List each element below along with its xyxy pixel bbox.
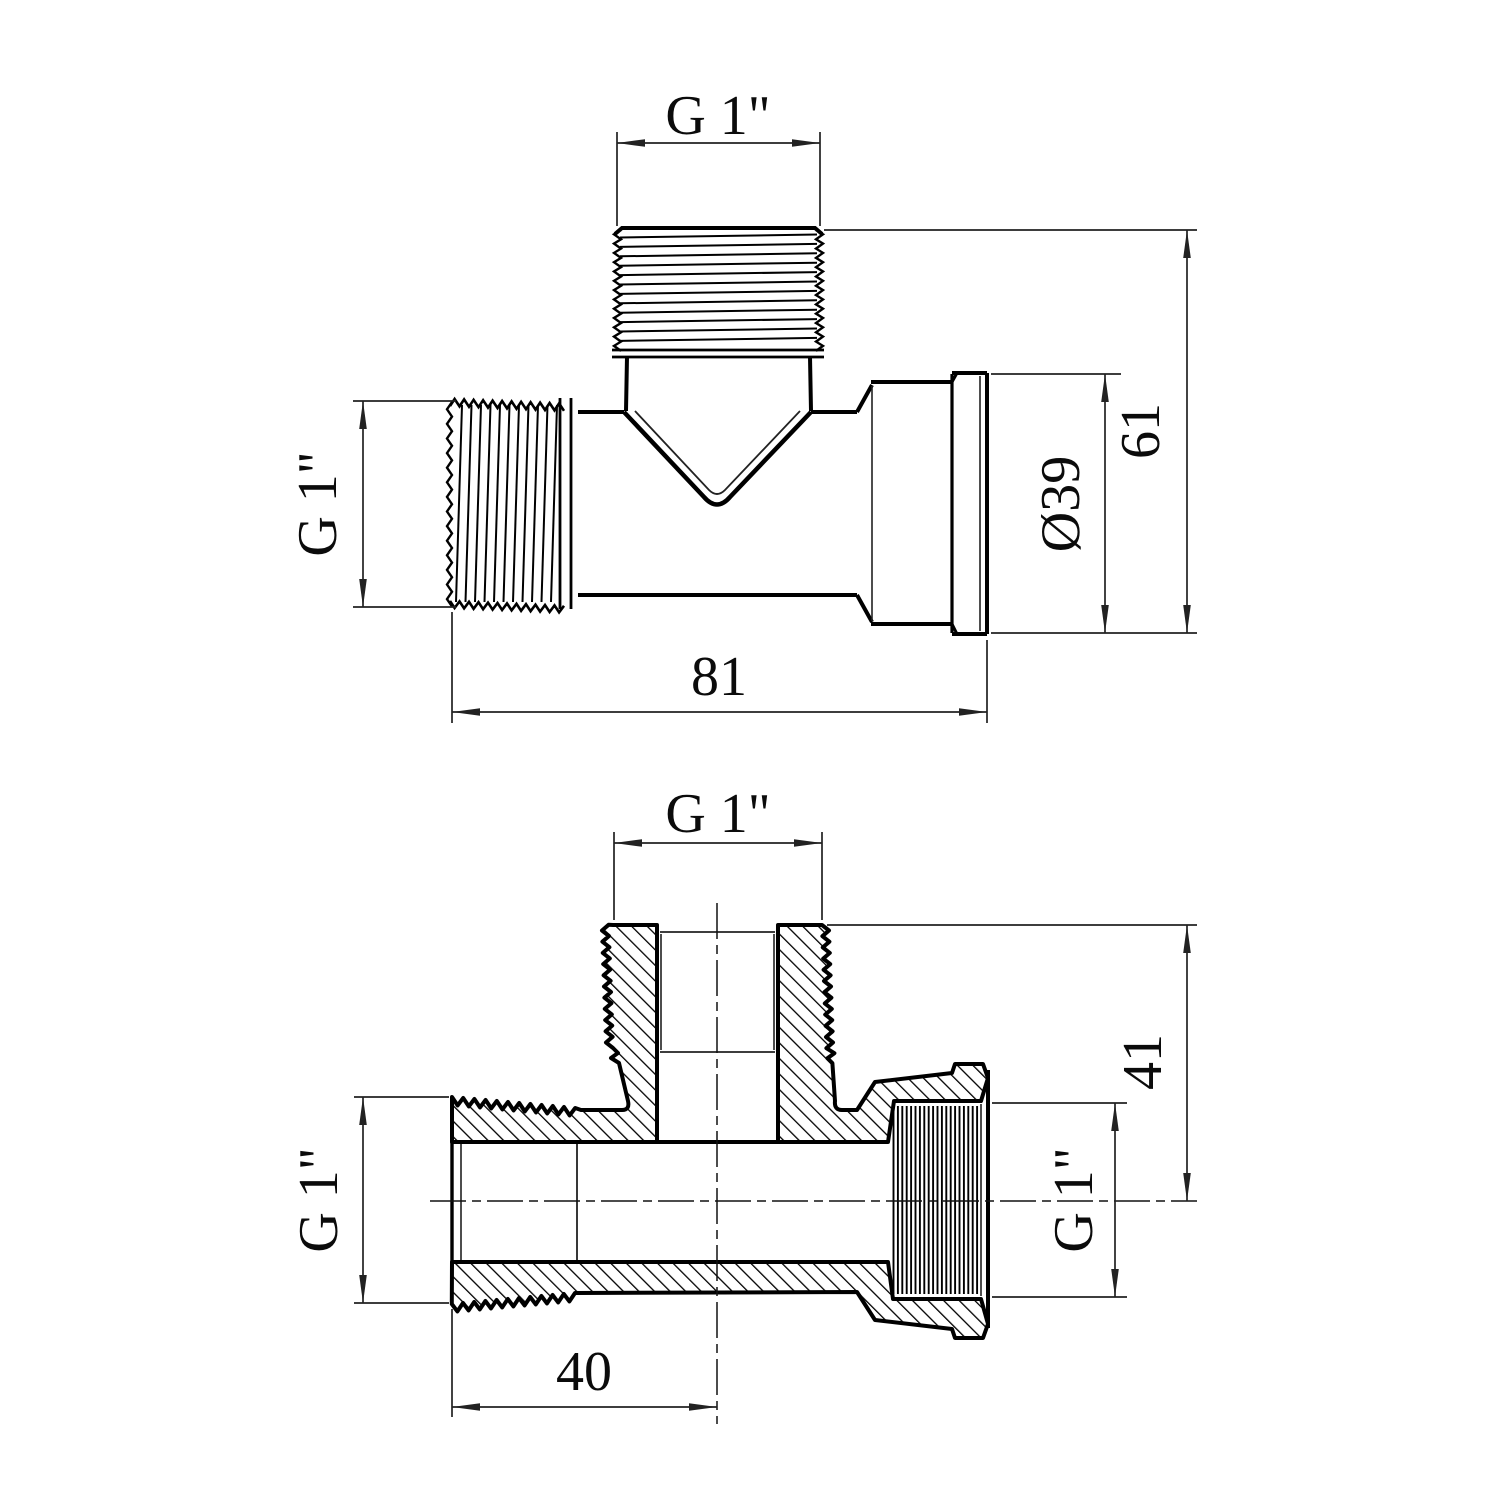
dim-branch-thread-section: G 1" bbox=[614, 783, 822, 920]
dim-label-left-port-length: 40 bbox=[556, 1341, 612, 1403]
top-view-body bbox=[578, 357, 857, 595]
dim-socket-diameter: Ø39 bbox=[991, 374, 1121, 633]
dim-branch-thread: G 1" bbox=[617, 85, 820, 226]
drawing-sheet: G 1" G 1" Ø39 61 81 bbox=[0, 0, 1500, 1500]
socket-cone-edges bbox=[857, 385, 872, 622]
dim-label-socket-diameter: Ø39 bbox=[1030, 456, 1092, 552]
wall-upper-left bbox=[452, 925, 657, 1142]
funnel-outline bbox=[624, 412, 811, 505]
dim-right-thread-section: G 1" bbox=[992, 1103, 1127, 1297]
top-view-branch-thread bbox=[612, 228, 824, 357]
branch-neck-edges bbox=[626, 357, 811, 411]
thread-helix-lines bbox=[456, 405, 557, 602]
dim-label-branch-thread: G 1" bbox=[665, 85, 770, 147]
thread-end-cap bbox=[615, 228, 822, 234]
dim-body-length: 81 bbox=[452, 612, 987, 723]
thread-right-edge bbox=[816, 230, 823, 351]
top-view: G 1" G 1" Ø39 61 81 bbox=[287, 85, 1197, 723]
dim-label-right-thread-section: G 1" bbox=[1043, 1147, 1105, 1252]
thread-bottom-edge bbox=[450, 601, 564, 612]
dim-overall-height: 61 bbox=[824, 230, 1197, 633]
thread-relief-lines bbox=[612, 350, 824, 357]
socket-cylinder-edges bbox=[871, 382, 952, 624]
dim-label-branch-height: 41 bbox=[1112, 1034, 1174, 1090]
wall-upper-right bbox=[778, 925, 988, 1142]
thread-helix-lines bbox=[620, 235, 817, 341]
dim-label-body-length: 81 bbox=[691, 646, 747, 708]
dim-label-branch-thread-section: G 1" bbox=[665, 783, 770, 845]
top-view-dimensions: G 1" G 1" Ø39 61 81 bbox=[287, 85, 1197, 723]
dim-left-thread-section: G 1" bbox=[288, 1097, 449, 1303]
dim-left-thread: G 1" bbox=[287, 401, 456, 607]
thread-left-edge bbox=[614, 230, 621, 351]
dim-label-left-thread: G 1" bbox=[287, 451, 349, 556]
female-thread-lines bbox=[894, 1106, 978, 1294]
socket-ring-edges bbox=[952, 373, 987, 634]
dim-left-port-length: 40 bbox=[452, 1309, 717, 1417]
top-view-left-thread bbox=[447, 398, 571, 612]
section-view-dimensions: G 1" G 1" G 1" 41 40 bbox=[288, 783, 1197, 1417]
dim-label-overall-height: 61 bbox=[1110, 403, 1172, 459]
thread-start-edge bbox=[447, 402, 452, 606]
top-view-socket bbox=[857, 373, 987, 634]
thread-relief-lines bbox=[560, 398, 571, 609]
bore-edges bbox=[452, 1142, 888, 1262]
technical-drawing-svg: G 1" G 1" Ø39 61 81 bbox=[0, 0, 1500, 1500]
dim-branch-height: 41 bbox=[827, 925, 1197, 1201]
section-view: G 1" G 1" G 1" 41 40 bbox=[288, 783, 1197, 1424]
dim-label-left-thread-section: G 1" bbox=[288, 1147, 350, 1252]
